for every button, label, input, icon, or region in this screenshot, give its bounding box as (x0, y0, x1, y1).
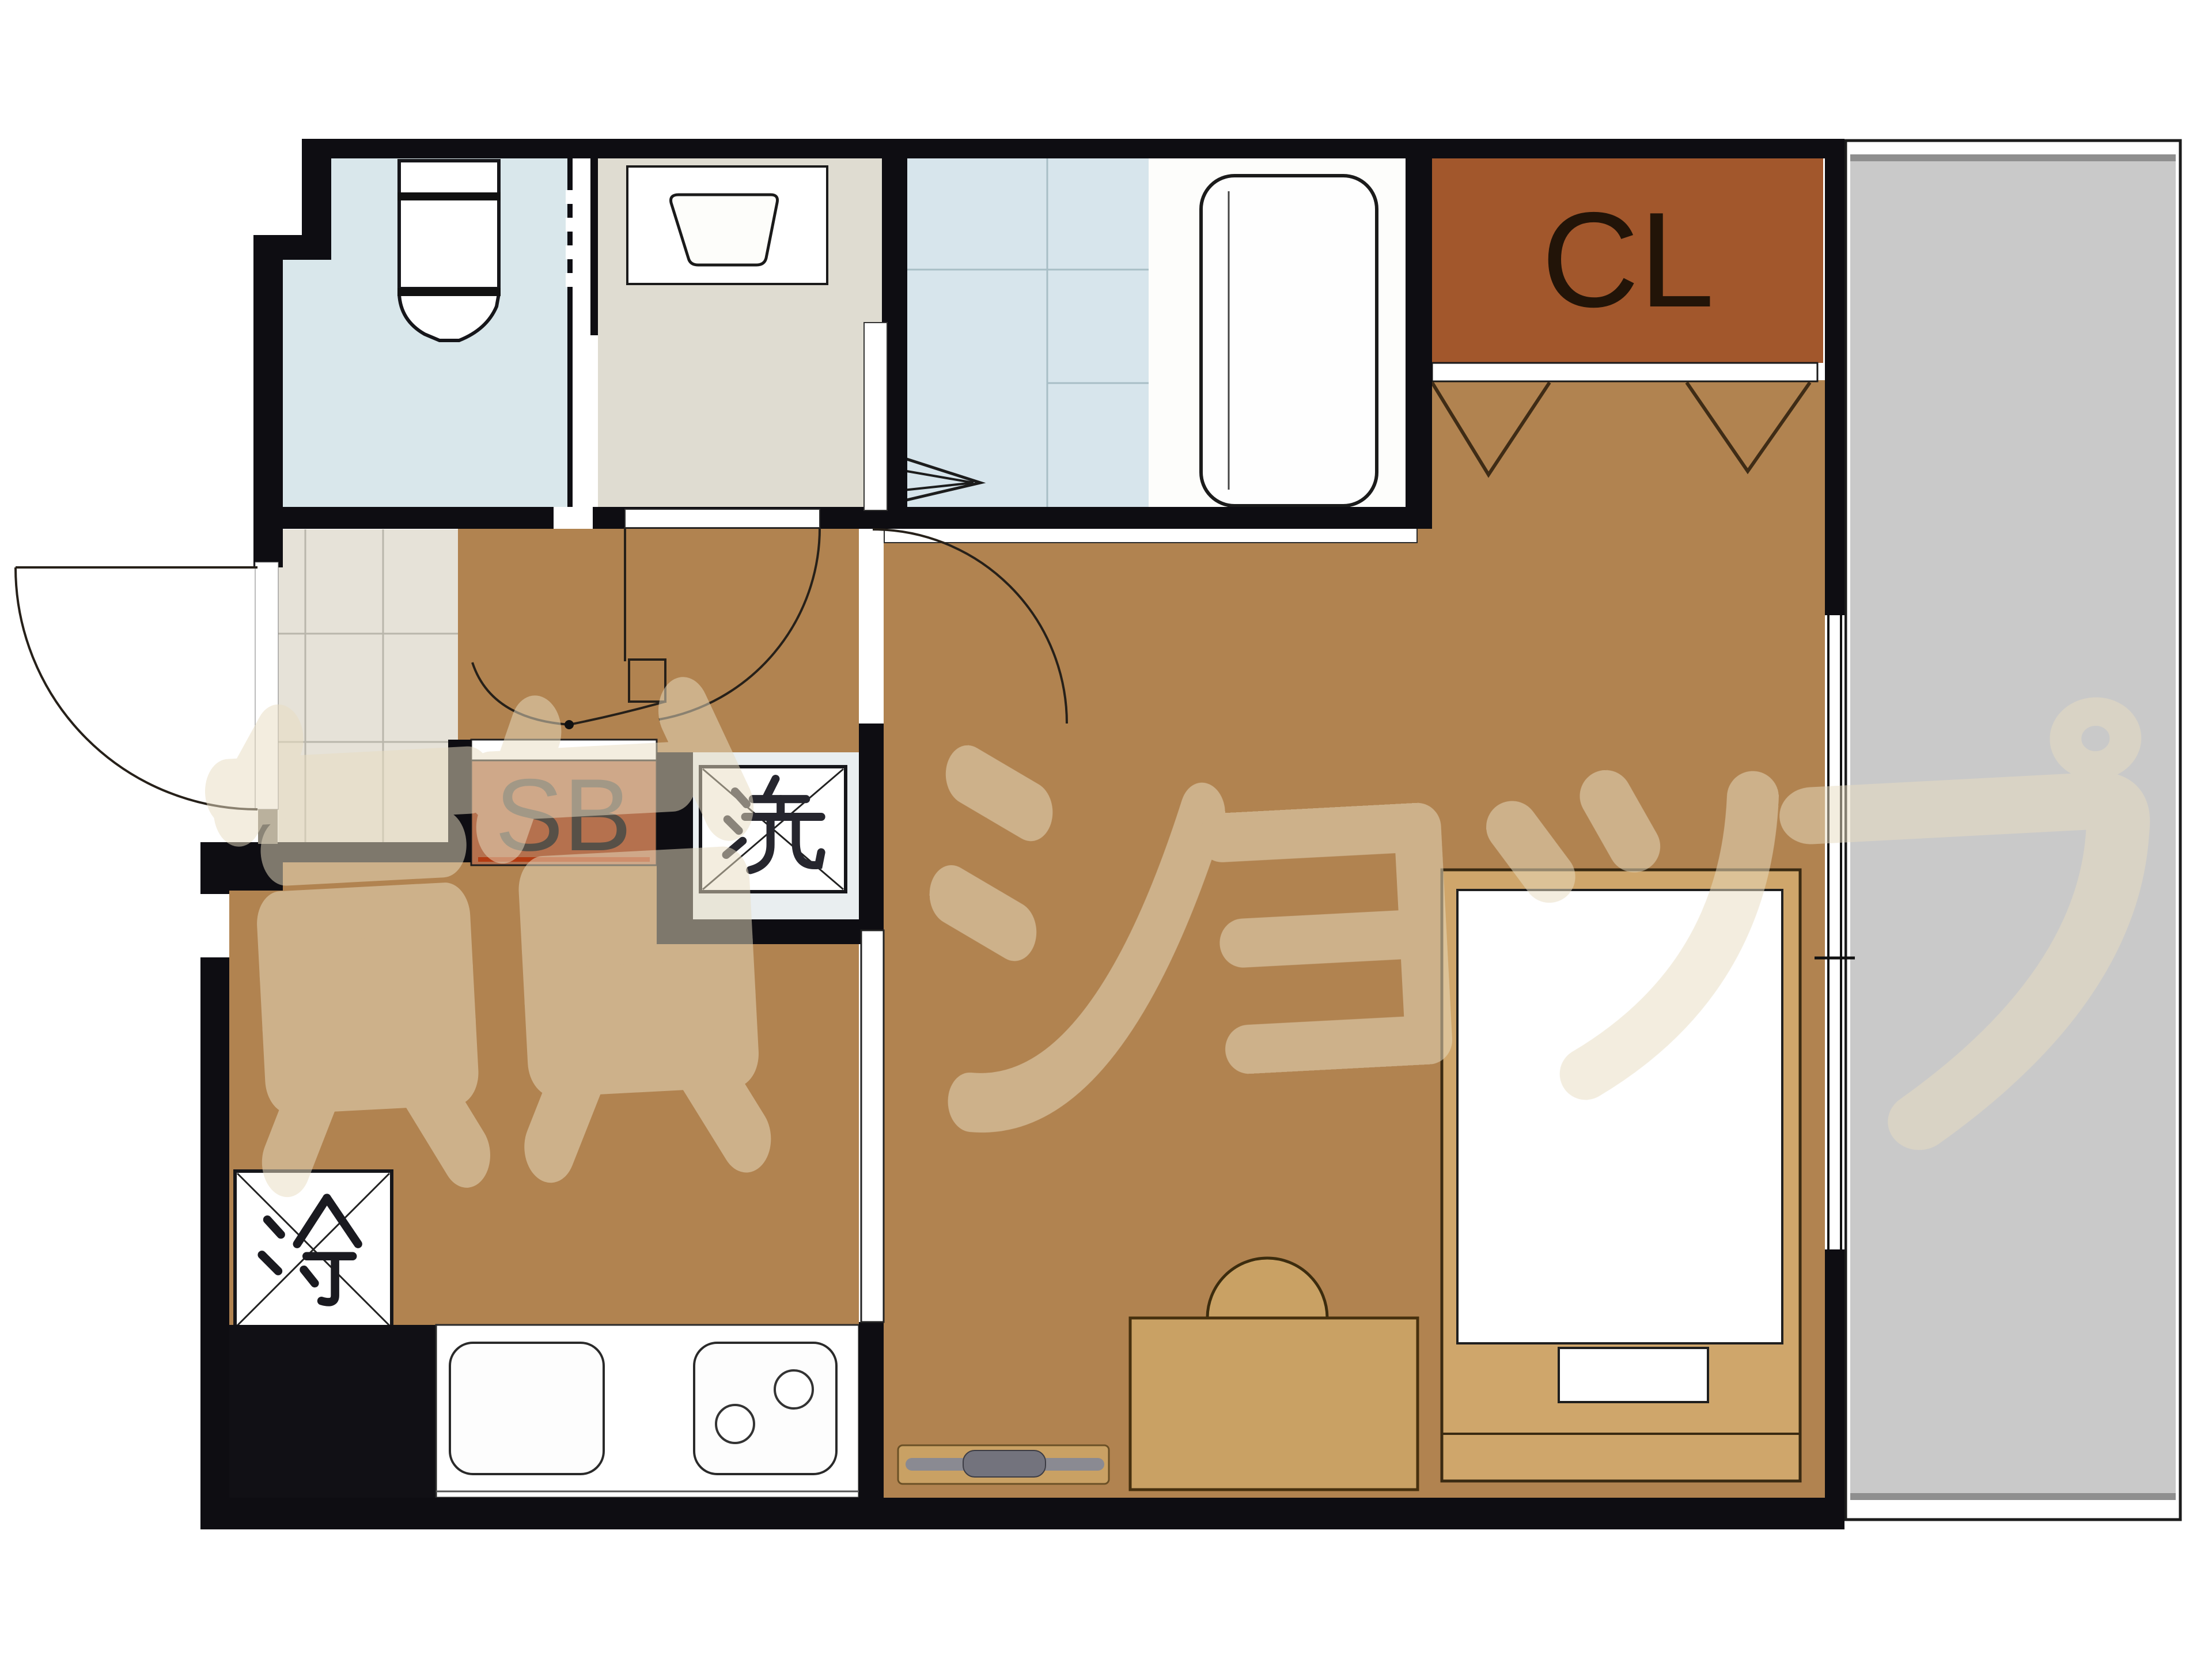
svg-text:CL: CL (1541, 184, 1714, 335)
